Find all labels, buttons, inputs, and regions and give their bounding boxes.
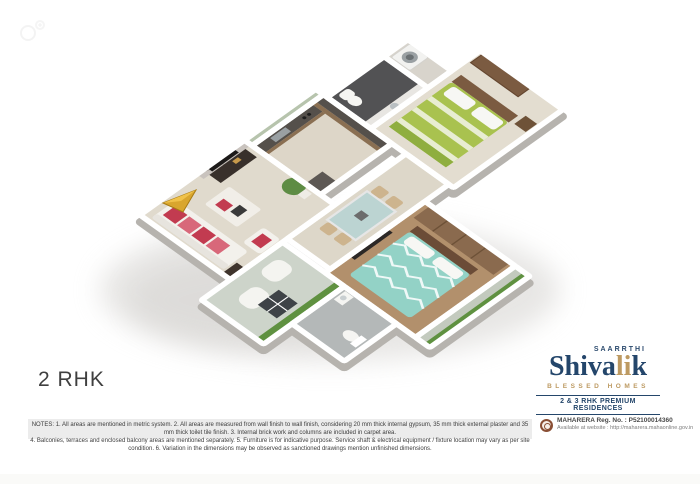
wordmark-navy-part: Shiva xyxy=(549,351,616,382)
rera-text: MAHARERA Reg. No. : P52100014360 Availab… xyxy=(557,417,693,432)
brand-banner: 2 & 3 RHK PREMIUM RESIDENCES xyxy=(536,395,660,415)
brand-block: SAARRTHI Shivalik BLESSED HOMES 2 & 3 RH… xyxy=(528,346,668,415)
rera-block: MAHARERA Reg. No. : P52100014360 Availab… xyxy=(540,417,693,432)
wordmark-gold-part: li xyxy=(616,351,632,382)
footer-band xyxy=(0,474,700,484)
brand-tagline: BLESSED HOMES xyxy=(528,383,668,390)
notes-strip: NOTES: 1. All areas are mentioned in met… xyxy=(28,419,532,439)
wordmark-navy-part2: k xyxy=(631,351,647,382)
rera-website: Available at website : http://maharera.m… xyxy=(557,425,693,432)
notes-line-2: 4. Balconies, terraces and enclosed balc… xyxy=(28,437,532,453)
flyer-canvas: 2 RHK SAARRTHI Shivalik BLESSED HOMES 2 … xyxy=(0,0,700,484)
brand-wordmark: Shivalik xyxy=(528,353,668,381)
notes-line-1: NOTES: 1. All areas are mentioned in met… xyxy=(28,421,532,437)
rera-registration: MAHARERA Reg. No. : P52100014360 xyxy=(557,417,693,425)
unit-type-label: 2 RHK xyxy=(38,368,105,392)
maharera-logo-icon xyxy=(540,419,553,432)
